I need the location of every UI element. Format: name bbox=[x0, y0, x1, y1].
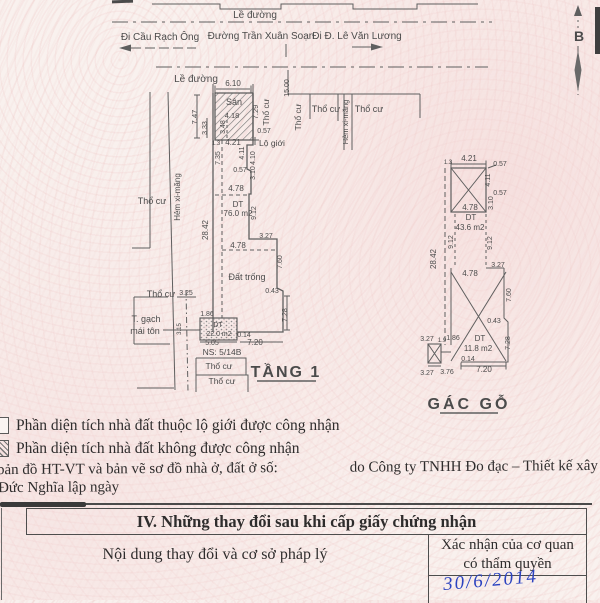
building-frontage-line bbox=[152, 4, 478, 9]
dim-label: 7.29 bbox=[251, 105, 260, 120]
dim-label: 3.25 bbox=[179, 290, 193, 297]
dim-label: 9.12 bbox=[487, 236, 494, 250]
dim-label: 3.15 bbox=[177, 323, 183, 335]
structure-label: mái tôn bbox=[130, 326, 160, 336]
dim-label: 0.57 bbox=[493, 190, 507, 197]
legend-text: Phần diện tích nhà đất không được công n… bbox=[16, 440, 299, 458]
structure-label: T. gạch bbox=[131, 314, 160, 324]
dim-label: 5.05 bbox=[205, 340, 219, 347]
table-top-border bbox=[0, 503, 592, 505]
dim-label: 3.27 bbox=[259, 233, 273, 240]
plan1-lines bbox=[132, 70, 420, 392]
dim-label: 7.20 bbox=[247, 338, 263, 347]
land-use-label: Thổ cư bbox=[147, 289, 176, 299]
area-label: DT bbox=[466, 213, 477, 222]
street-name-label: Đường Trần Xuân Soạn bbox=[208, 30, 315, 42]
dim-label: 3.76 bbox=[440, 369, 454, 376]
dim-label: 7.28 bbox=[505, 336, 512, 350]
legend-item-recognized: Phần diện tích nhà đất thuộc lộ giới đượ… bbox=[0, 414, 470, 437]
section-title: IV. Những thay đổi sau khi cấp giấy chứn… bbox=[26, 508, 587, 535]
dim-label: 4.78 bbox=[230, 241, 246, 250]
notes: bản đồ HT-VT và bản vẽ sơ đồ nhà ở, đất … bbox=[0, 458, 600, 497]
note-surveyor-name: Đức Nghĩa lập ngày bbox=[0, 476, 600, 497]
plan2-title: GÁC GỖ bbox=[428, 394, 511, 413]
street-direction-label: Đi Đ. Lê Văn Lương bbox=[312, 31, 401, 42]
north-needle-icon bbox=[575, 50, 582, 92]
dim-label: 4.21 bbox=[461, 154, 477, 163]
land-use-label: Thổ cư bbox=[209, 376, 236, 386]
boundary-label: Lộ giới bbox=[259, 138, 285, 148]
sidewalk-label: Lề đường bbox=[233, 9, 277, 21]
dim-label: 0.43 bbox=[265, 288, 279, 295]
dim-label: 7.47 bbox=[190, 110, 199, 125]
alley-label: Hẻm xi-măng bbox=[341, 100, 350, 145]
area-label: 76.0 m2 bbox=[224, 209, 253, 218]
dim-label: 4.11 bbox=[239, 146, 246, 159]
scan-ink-blob bbox=[0, 502, 86, 507]
dim-label: 4.78 bbox=[228, 184, 244, 193]
note-surveyor-company: do Công ty TNHH Đo đạc – Thiết kế xây dự… bbox=[350, 458, 600, 477]
dim-label: 9.12 bbox=[251, 206, 258, 220]
area-label: DT bbox=[233, 200, 244, 209]
dim-label: 7.20 bbox=[476, 365, 492, 374]
dim-label: 3.48 bbox=[220, 120, 227, 134]
dim-label: 0.14 bbox=[461, 356, 475, 363]
legend: Phần diện tích nhà đất thuộc lộ giới đượ… bbox=[0, 414, 470, 460]
dim-label: 15.00 bbox=[284, 79, 291, 97]
column-header-changes: Nội dung thay đổi và cơ sở pháp lý bbox=[2, 535, 428, 575]
area-label: DT bbox=[475, 334, 486, 343]
dim-label: 1.86 bbox=[446, 335, 460, 342]
direction-arrow-left-icon bbox=[119, 45, 131, 52]
dim-label: 0.57 bbox=[493, 161, 507, 168]
house-number-label: NS: 5/14B bbox=[203, 347, 242, 357]
street-direction-label: Đi Cầu Rạch Ông bbox=[121, 30, 199, 43]
dim-label: 3.10 bbox=[250, 166, 257, 180]
area-label: 22.0 m2 bbox=[206, 331, 231, 338]
dim-label: 0.57 bbox=[257, 128, 271, 135]
dim-label: 7.35 bbox=[215, 151, 222, 165]
land-use-label: Thổ cư bbox=[206, 361, 233, 371]
land-use-label: Thổ cư bbox=[138, 196, 167, 206]
zone-label: Đất trống bbox=[228, 272, 265, 282]
legend-item-not-recognized: Phần diện tích nhà đất không được công n… bbox=[0, 437, 470, 460]
dim-label: 9.12 bbox=[448, 235, 455, 249]
dim-label: 1.3 bbox=[212, 141, 221, 147]
land-use-label: Thổ cư bbox=[293, 103, 303, 130]
legend-text: Phần diện tích nhà đất thuộc lộ giới đượ… bbox=[16, 417, 340, 435]
area-label: DT bbox=[213, 322, 223, 329]
dim-label: 3.33 bbox=[202, 121, 209, 135]
legend-swatch-hatched bbox=[0, 440, 9, 457]
plan1-title: TẦNG 1 bbox=[251, 362, 322, 381]
dim-label: 0.57 bbox=[233, 167, 247, 174]
legend-swatch-empty bbox=[0, 417, 9, 434]
dim-label: 3.10 bbox=[488, 196, 495, 210]
scanned-land-certificate-page: { "meta": { "paper": "#f9f1ee", "ink": "… bbox=[0, 0, 600, 600]
note-map-reference: bản đồ HT-VT và bản vẽ sơ đồ nhà ở, đất … bbox=[0, 460, 278, 479]
dim-label: 4.10 bbox=[250, 151, 257, 165]
survey-drawing: Lề đườngĐi Cầu Rạch ÔngĐường Trần Xuân S… bbox=[0, 0, 600, 415]
area-label: 43.6 m2 bbox=[456, 223, 485, 232]
dim-label: 4.78 bbox=[462, 269, 478, 278]
dim-label: 7.28 bbox=[282, 308, 289, 322]
land-use-label: Thổ cư bbox=[261, 98, 271, 125]
alley-label: Hẻm xi-măng bbox=[173, 173, 182, 221]
north-label: B bbox=[574, 28, 584, 44]
direction-arrow-right-icon bbox=[371, 44, 383, 51]
land-use-label: Thổ cư bbox=[312, 104, 341, 114]
north-arrowhead-icon bbox=[574, 5, 582, 16]
dim-label: 4.78 bbox=[462, 203, 478, 212]
dim-label: 28.42 bbox=[201, 219, 210, 240]
dim-label: 4.21 bbox=[225, 138, 241, 147]
land-use-label: Thổ cư bbox=[355, 104, 384, 114]
sidewalk-label: Lề đường bbox=[174, 73, 218, 85]
area-label: 11.8 m2 bbox=[464, 344, 493, 353]
dim-label: 7.60 bbox=[506, 288, 513, 302]
dim-label: 28.42 bbox=[429, 248, 438, 269]
dim-label: 1.3 bbox=[444, 160, 453, 166]
dim-label: 0.43 bbox=[487, 318, 501, 325]
dim-label: 4.11 bbox=[485, 173, 492, 186]
dim-label: 4.18 bbox=[225, 111, 240, 120]
dim-label: 3.27 bbox=[420, 370, 434, 377]
dim-label: 6.10 bbox=[225, 79, 241, 88]
dim-label: 3.27 bbox=[491, 262, 505, 269]
dim-label: 3.27 bbox=[420, 336, 434, 343]
zone-label: Sân bbox=[226, 97, 242, 107]
dim-label: 1.86 bbox=[200, 311, 214, 318]
dim-label: 7.60 bbox=[277, 255, 284, 269]
